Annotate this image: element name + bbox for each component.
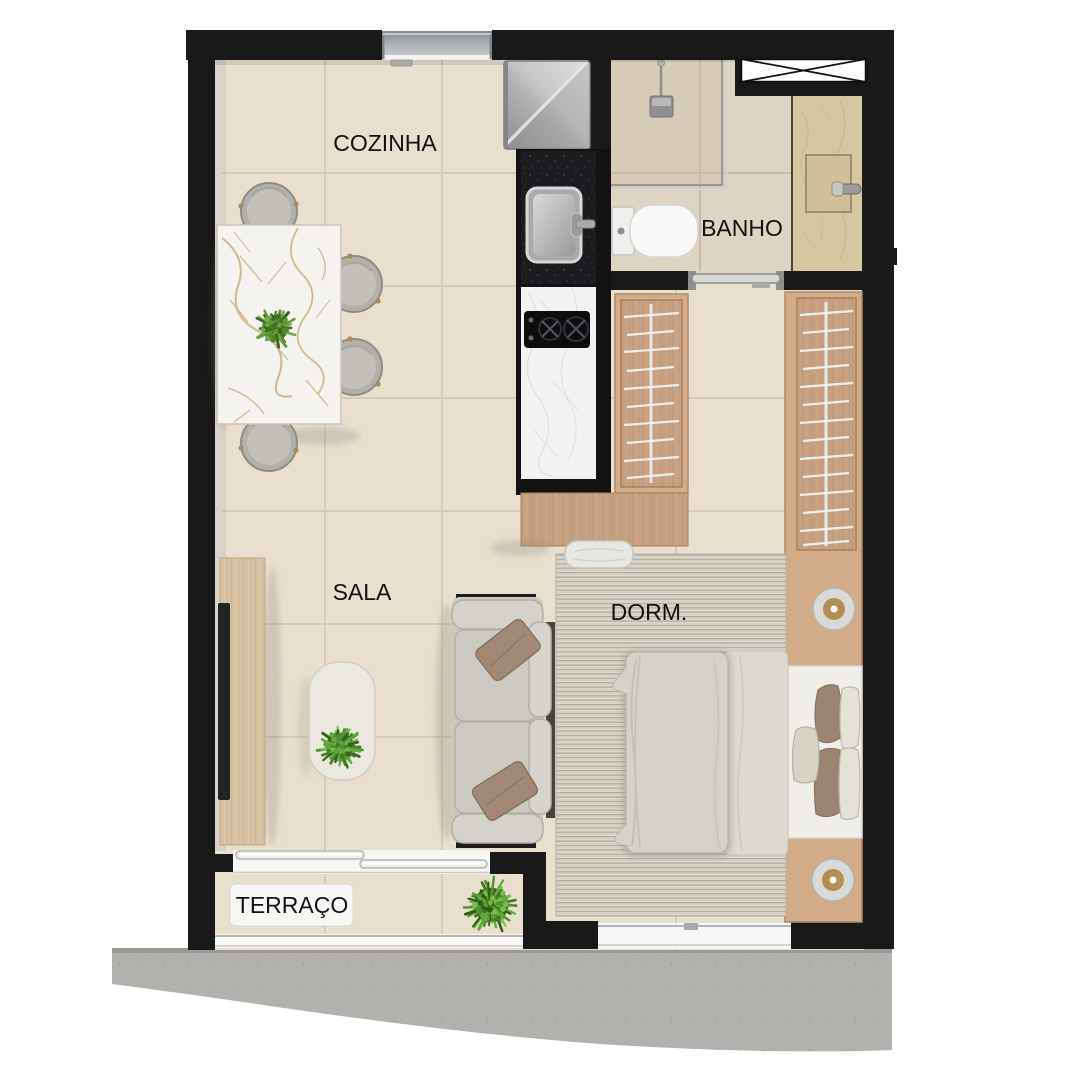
svg-text:COZINHA: COZINHA [333,130,437,156]
svg-text:TERRAÇO: TERRAÇO [236,892,348,918]
svg-text:BANHO: BANHO [701,215,783,241]
svg-text:DORM.: DORM. [611,599,688,625]
svg-text:SALA: SALA [333,579,392,605]
